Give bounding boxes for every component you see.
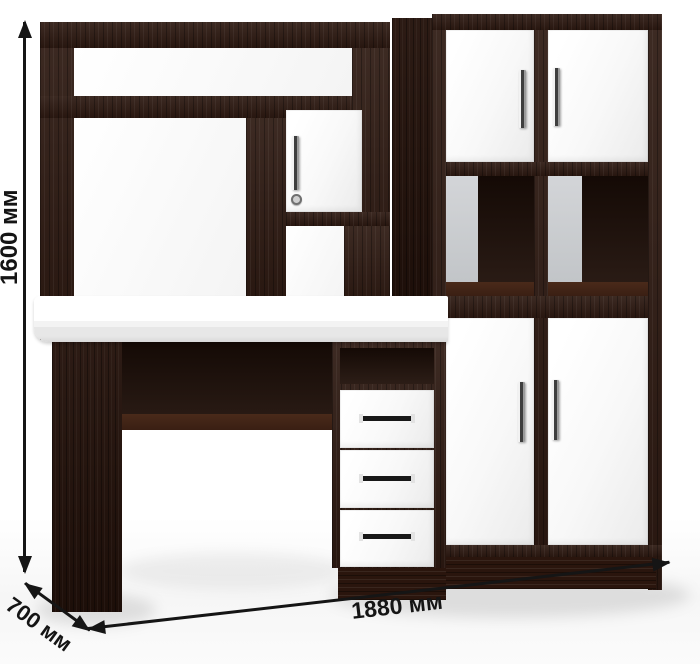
- desk-drawer-pedestal: [332, 342, 446, 568]
- cabinet-side-panel: [392, 18, 432, 302]
- product-scene: 1600 мм 1880 мм 700 мм: [0, 0, 700, 664]
- desk-under-top-niche: [122, 342, 332, 430]
- pedestal-open-niche: [340, 348, 434, 384]
- cabinet-bottom-rail: [432, 545, 662, 557]
- height-dim-arrow-bottom: [18, 556, 32, 574]
- cabinet-door-top-left-handle: [519, 70, 526, 128]
- hutch-lower-open-cell: [286, 226, 344, 298]
- drawer-3: [340, 510, 434, 567]
- cabinet-center-stile: [534, 30, 548, 545]
- cabinet-right-stile: [648, 30, 662, 590]
- desk-niche-shelf: [122, 414, 332, 430]
- cabinet-door-top-left: [446, 30, 534, 162]
- drawer-1-handle: [359, 414, 415, 423]
- drawer-1: [340, 390, 434, 448]
- hutch-left-open-bay: [74, 118, 246, 298]
- hutch-door-handle: [292, 136, 299, 190]
- hutch-cabinet-door: [286, 110, 362, 212]
- cabinet-door-bottom-right: [548, 318, 648, 545]
- height-dim-label: 1600 мм: [0, 178, 24, 296]
- drawer-3-handle: [359, 532, 415, 541]
- hutch-door-lock: [291, 194, 302, 205]
- depth-dim-arrow-upper: [20, 577, 43, 599]
- cubby-right-shelf: [548, 282, 648, 296]
- cabinet-top-rail: [432, 14, 662, 30]
- cabinet-door-bottom-right-handle: [552, 380, 559, 440]
- drawer-2-handle: [359, 474, 415, 483]
- drawer-2: [340, 450, 434, 508]
- cabinet-door-top-right: [548, 30, 648, 162]
- cubby-right-back-panel: [548, 176, 582, 282]
- cabinet-middle-rail: [446, 162, 648, 176]
- hutch-top-rail: [40, 22, 390, 48]
- cabinet-door-bottom-left: [446, 318, 534, 545]
- hutch-left-stile: [40, 22, 74, 340]
- hutch-center-divider: [246, 118, 286, 310]
- cubby-left-back-panel: [446, 176, 478, 282]
- hutch-under-door-shelf: [286, 212, 390, 226]
- cabinet-door-top-right-handle: [553, 68, 560, 126]
- height-dim-arrow-top: [18, 20, 32, 38]
- cabinet-open-cubby-right: [548, 176, 648, 296]
- cabinet-lower-rail: [446, 296, 648, 318]
- cubby-left-shelf: [446, 282, 534, 296]
- width-dim-arrow-right: [652, 556, 671, 572]
- cabinet-open-cubby-left: [446, 176, 534, 296]
- hutch-upper-open-shelf: [74, 48, 352, 96]
- floor-shadow-kneehole: [118, 552, 348, 590]
- height-dim-line: [23, 22, 26, 572]
- cabinet-door-bottom-left-handle: [518, 382, 525, 442]
- desk-top-surface: [34, 296, 448, 342]
- desk-left-side-panel: [52, 342, 122, 612]
